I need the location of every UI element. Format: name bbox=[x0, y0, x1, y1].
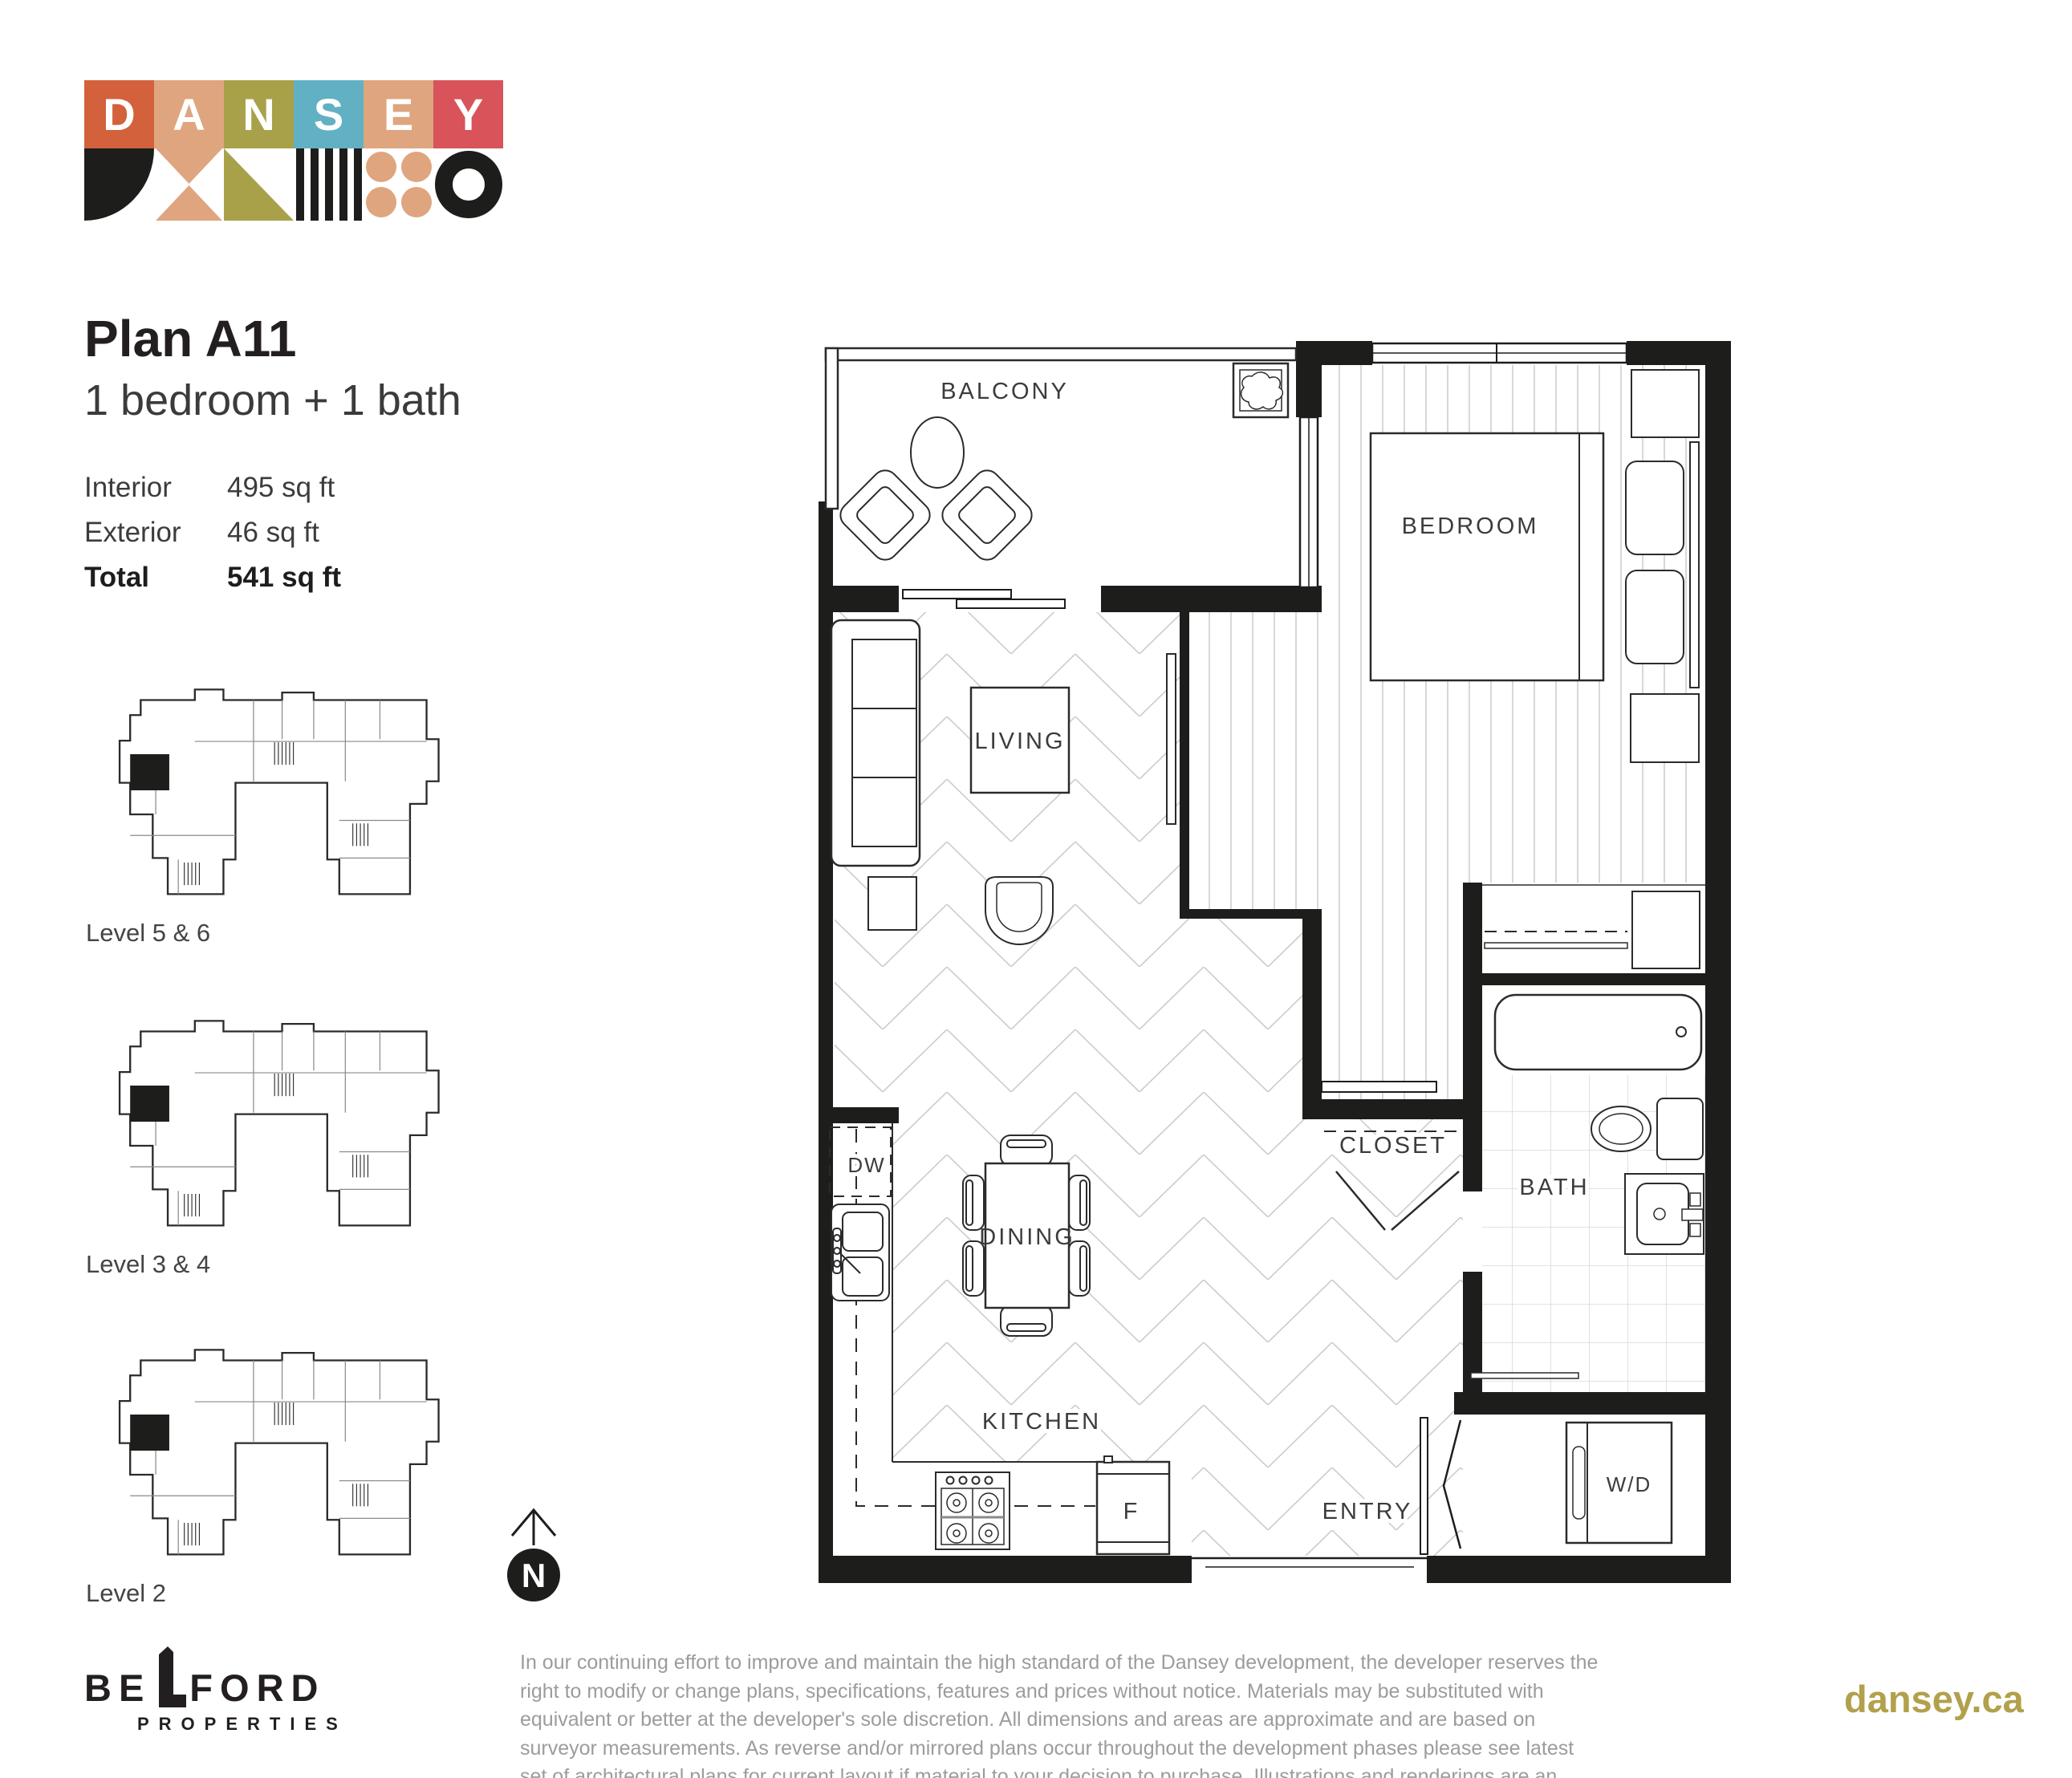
stat-value-exterior: 46 sq ft bbox=[227, 517, 341, 549]
dansey-logo-letters: D A N S E Y bbox=[84, 80, 503, 148]
page-title: Plan A11 bbox=[84, 309, 296, 368]
quarter-circle-icon bbox=[84, 148, 154, 221]
logo-tile-e: E bbox=[364, 80, 433, 148]
website-link[interactable]: dansey.ca bbox=[1844, 1677, 2024, 1721]
entry-door-recess bbox=[1192, 1556, 1427, 1583]
bedroom-label: BEDROOM bbox=[1402, 514, 1539, 539]
planter bbox=[1233, 363, 1288, 417]
cooktop bbox=[936, 1472, 1010, 1549]
logo-tile-s: S bbox=[294, 80, 364, 148]
logo-tile-y: Y bbox=[433, 80, 503, 148]
hourglass-icon bbox=[154, 148, 224, 221]
kitchen-sink bbox=[831, 1204, 889, 1301]
balcony-sliding-door bbox=[903, 590, 1011, 599]
dishwasher-label: DW bbox=[847, 1153, 885, 1177]
belford-name-right: FORD bbox=[189, 1669, 325, 1707]
stat-label-exterior: Exterior bbox=[84, 517, 227, 549]
pillow bbox=[1626, 570, 1684, 664]
belford-building-icon bbox=[152, 1646, 186, 1707]
logo-tile-a: A bbox=[154, 80, 224, 148]
stat-value-interior: 495 sq ft bbox=[227, 472, 341, 504]
fridge-label: F bbox=[1123, 1499, 1140, 1524]
bars-icon bbox=[294, 148, 364, 221]
plan-subtitle: 1 bedroom + 1 bath bbox=[84, 375, 461, 425]
living-label: LIVING bbox=[974, 729, 1065, 754]
tv bbox=[1167, 654, 1176, 824]
plan-stats: Interior 495 sq ft Exterior 46 sq ft Tot… bbox=[84, 472, 341, 594]
north-arrow: N bbox=[481, 1499, 602, 1631]
entry-label: ENTRY bbox=[1322, 1499, 1413, 1524]
dots-icon bbox=[364, 148, 433, 221]
stat-label-total: Total bbox=[84, 562, 227, 594]
closet-label: CLOSET bbox=[1339, 1133, 1447, 1159]
headboard bbox=[1690, 442, 1699, 688]
keyplan-label: Level 2 bbox=[86, 1579, 461, 1608]
keyplan-label: Level 5 & 6 bbox=[86, 919, 461, 948]
belford-sub: PROPERTIES bbox=[84, 1714, 421, 1735]
bath-vanity bbox=[1625, 1174, 1704, 1254]
washer-dryer-label: W/D bbox=[1607, 1472, 1652, 1496]
nightstand bbox=[1631, 694, 1699, 762]
dansey-logo: D A N S E Y bbox=[84, 80, 503, 221]
nightstand bbox=[1631, 370, 1699, 437]
logo-tile-d: D bbox=[84, 80, 154, 148]
bath-shelf bbox=[1471, 1373, 1578, 1378]
floorplan-sheet: D A N S E Y Plan A11 1 bedroom + 1 bat bbox=[0, 0, 2072, 1778]
north-label: N bbox=[522, 1557, 546, 1594]
bathtub bbox=[1495, 995, 1701, 1070]
keyplan-drawing bbox=[76, 1330, 453, 1571]
keyplan-level-2: Level 2 bbox=[76, 1330, 461, 1608]
dresser bbox=[1632, 891, 1700, 968]
bedroom-sliding-door bbox=[1322, 1082, 1436, 1092]
belford-logo: BE FORD PROPERTIES bbox=[84, 1646, 421, 1735]
logo-tile-n: N bbox=[224, 80, 294, 148]
tub-drain bbox=[1676, 1027, 1686, 1037]
pillow bbox=[1626, 461, 1684, 554]
keyplan-label: Level 3 & 4 bbox=[86, 1250, 461, 1279]
bed bbox=[1371, 433, 1603, 680]
ring-icon bbox=[433, 148, 503, 221]
dansey-logo-shapes bbox=[84, 148, 503, 221]
kitchen-label: KITCHEN bbox=[982, 1409, 1101, 1435]
keyplan-drawing bbox=[76, 1001, 453, 1242]
stat-value-total: 541 sq ft bbox=[227, 562, 341, 594]
kitchen-counter-left bbox=[831, 1123, 892, 1556]
unit-floorplan: BALCONY BEDROOM LIVING DINING KITCHEN CL… bbox=[819, 341, 1753, 1613]
disclaimer-text: In our continuing effort to improve and … bbox=[520, 1649, 1605, 1778]
keyplan-level-5-6: Level 5 & 6 bbox=[76, 670, 461, 948]
balcony-label: BALCONY bbox=[941, 379, 1069, 404]
belford-name-left: BE bbox=[84, 1669, 151, 1707]
entry-door-leaf bbox=[1420, 1418, 1428, 1554]
stat-label-interior: Interior bbox=[84, 472, 227, 504]
bath-label: BATH bbox=[1519, 1175, 1589, 1200]
dining-label: DINING bbox=[979, 1224, 1075, 1250]
triangle-icon bbox=[224, 148, 294, 221]
keyplan-drawing bbox=[76, 670, 453, 911]
keyplan-level-3-4: Level 3 & 4 bbox=[76, 1001, 461, 1279]
side-table bbox=[868, 877, 916, 930]
balcony-table bbox=[911, 417, 964, 488]
